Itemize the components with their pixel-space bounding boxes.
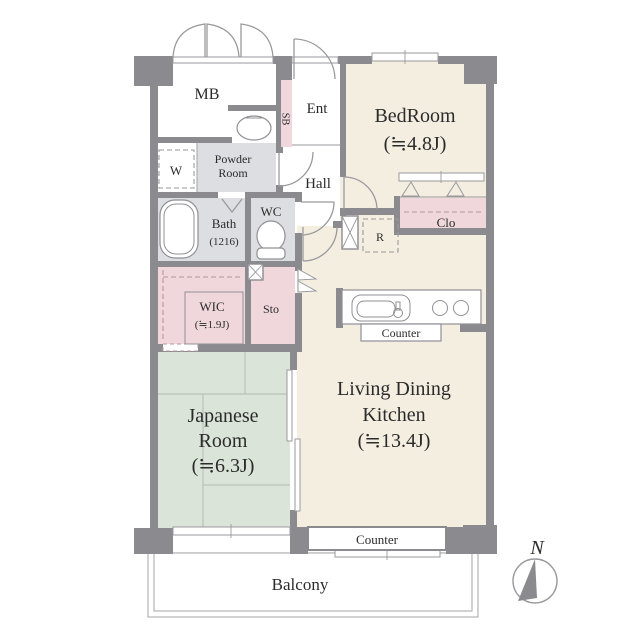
label-japanese-size: (≒6.3J) [192,455,255,477]
room-ldk [297,210,486,528]
wall [245,192,302,198]
label-hall: Hall [305,176,331,192]
pillar [134,528,173,554]
wic-japanese-opening [163,344,198,351]
label-window-counter: Counter [356,532,399,547]
label-kitchen-counter: Counter [382,326,421,340]
wall [276,147,283,153]
label-sto: Sto [263,302,279,316]
label-balcony: Balcony [272,575,329,594]
label-ldk-1: Living Dining [337,378,451,400]
label-closet: Clo [437,215,456,230]
wall [446,527,463,554]
label-wic: WIC [199,299,224,314]
label-compass-north: N [529,537,545,559]
wall [295,233,302,264]
compass-icon [513,559,557,603]
washbasin-icon [237,116,271,140]
shaft-icon [342,216,358,249]
wall [460,324,486,332]
label-bath-size: (1216) [209,236,239,248]
wall [158,192,218,198]
label-sb: SB [280,113,291,126]
pillar [464,56,497,84]
label-ldk-size: (≒13.4J) [358,430,431,452]
label-wic-size: (≒1.9J) [195,319,230,331]
label-mb: MB [195,86,220,103]
wall [276,56,292,80]
wall [340,208,400,215]
label-bedroom-size: (≒4.8J) [384,133,447,155]
bathtub-icon [160,200,198,258]
wall [290,527,308,554]
wall [290,510,297,528]
floor-plan-canvas: MB Ent SB BedRoom (≒4.8J) Powder Room W … [0,0,640,640]
wall [150,64,158,528]
wall [228,105,276,111]
wall [290,352,297,370]
mb-door-swing-icon [173,24,205,57]
label-powder-1: Powder [215,152,252,166]
mb-door-swing-icon [241,24,273,57]
japanese-window-icon [173,527,290,535]
label-ent: Ent [307,101,329,117]
label-bath: Bath [212,216,237,231]
label-fridge: R [376,230,384,244]
wall [158,137,232,143]
wall [232,344,302,352]
shaft-icon [248,264,263,280]
pillar [463,525,497,554]
wall [158,261,302,267]
wall [338,56,372,64]
label-japanese-2: Room [199,430,248,452]
label-powder-2: Room [218,166,248,180]
wall [295,293,302,344]
wall [486,84,494,525]
mb-door-sill [173,57,273,63]
label-japanese-1: Japanese [187,405,258,427]
label-ldk-2: Kitchen [362,404,425,426]
toilet-icon [257,221,285,259]
floor-plan: MB Ent SB BedRoom (≒4.8J) Powder Room W … [0,0,640,640]
wall [245,198,251,262]
label-washer: W [170,163,183,178]
label-bedroom: BedRoom [374,105,456,127]
mb-door-swing-icon [207,24,239,57]
label-wc: WC [261,204,282,219]
wall [340,64,346,177]
wall [295,198,302,202]
